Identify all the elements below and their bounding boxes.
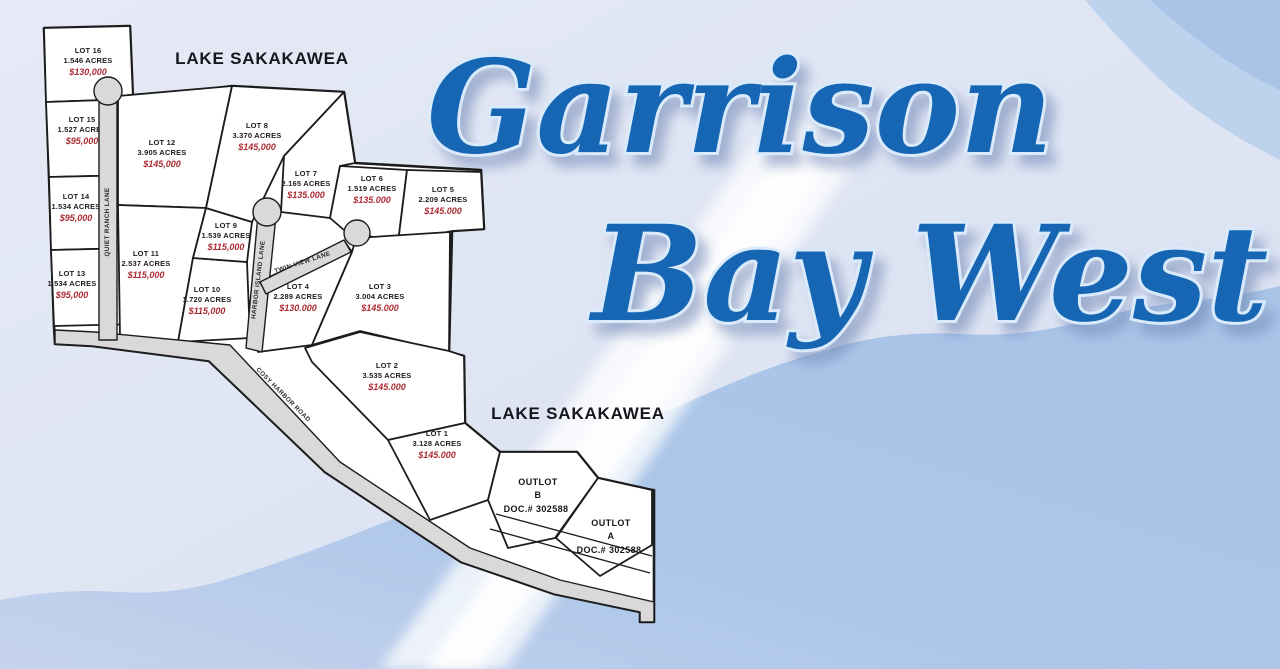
lot-5-acres: 2.209 ACRES (418, 195, 467, 204)
outlot-a-letter: A (608, 531, 615, 541)
lot-13-acres: 1.534 ACRES (47, 279, 96, 288)
lot-1-acres: 3.128 ACRES (412, 439, 461, 448)
lot-12-name: LOT 12 (149, 138, 176, 147)
lot-3-acres: 3.004 ACRES (355, 292, 404, 301)
lot-6-name: LOT 6 (361, 174, 383, 183)
lot-12-price: $145,000 (142, 159, 181, 169)
lot-5-name: LOT 5 (432, 185, 454, 194)
quiet-ranch-lane-label: QUIET RANCH LANE (104, 187, 111, 256)
lot-9-price: $115,000 (207, 242, 245, 252)
lot-4-name: LOT 4 (287, 282, 310, 291)
lot-13-price: $95,000 (55, 290, 89, 300)
twin-view-culdesac (344, 220, 370, 246)
lot-1-price: $145.000 (417, 450, 456, 460)
lot-16-price: $130,000 (68, 67, 107, 77)
outlot-b-letter: B (535, 490, 542, 500)
outlot-b-doc: DOC.# 302588 (504, 504, 569, 514)
lot-2-name: LOT 2 (376, 361, 398, 370)
lot-8-name: LOT 8 (246, 121, 268, 130)
harbor-island-culdesac (253, 198, 281, 226)
lot-11-name: LOT 11 (133, 249, 159, 258)
lot-12-acres: 3.905 ACRES (137, 148, 186, 157)
lot-2-price: $145.000 (367, 382, 406, 392)
title-line-2: Bay West (588, 197, 1269, 352)
outlot-a-name: OUTLOT (591, 518, 630, 528)
plat-map-page: Garrison Bay West LAKE SAKAKAWEA LAKE SA… (0, 0, 1280, 669)
lot-16-acres: 1.546 ACRES (63, 56, 112, 65)
lot-16-name: LOT 16 (75, 46, 102, 55)
lot-11-price: $115,000 (127, 270, 165, 280)
lot-14-name: LOT 14 (63, 192, 90, 201)
lot-4-price: $130.000 (278, 303, 317, 313)
lot-9-acres: 1.539 ACRES (201, 231, 250, 240)
lot-7-acres: 2.165 ACRES (281, 179, 330, 188)
title-line-1: Garrison (427, 33, 1053, 183)
lake-label-top: LAKE SAKAKAWEA (175, 49, 349, 68)
lot-10-acres: 1.720 ACRES (182, 295, 231, 304)
outlot-b-name: OUTLOT (518, 477, 557, 487)
lot-8-acres: 3.370 ACRES (232, 131, 281, 140)
lot-10-price: $115,000 (188, 306, 226, 316)
lot-8-price: $145,000 (237, 142, 276, 152)
lot-4-acres: 2.289 ACRES (273, 292, 322, 301)
lot-11-acres: 2.537 ACRES (121, 259, 170, 268)
lot-13-name: LOT 13 (59, 269, 86, 278)
lot-2-acres: 3.535 ACRES (362, 371, 411, 380)
quiet-ranch-culdesac (94, 77, 122, 105)
lot-7-name: LOT 7 (295, 169, 317, 178)
lot-9-name: LOT 9 (215, 221, 237, 230)
lot-14-acres: 1.534 ACRES (51, 202, 100, 211)
lot-15-name: LOT 15 (69, 115, 96, 124)
lot-3-price: $145.000 (360, 303, 399, 313)
lot-3-name: LOT 3 (369, 282, 391, 291)
lot-1-name: LOT 1 (426, 429, 448, 438)
lake-label-bottom: LAKE SAKAKAWEA (491, 404, 665, 423)
lot-6-price: $135.000 (352, 195, 391, 205)
lot-7-price: $135.000 (286, 190, 325, 200)
lot-6-acres: 1.519 ACRES (347, 184, 396, 193)
lot-5-price: $145.000 (423, 206, 462, 216)
lot-14-price: $95,000 (59, 213, 93, 223)
lot-10-name: LOT 10 (194, 285, 221, 294)
lot-15-price: $95,000 (65, 136, 99, 146)
plat-map-svg: Garrison Bay West LAKE SAKAKAWEA LAKE SA… (0, 0, 1280, 669)
